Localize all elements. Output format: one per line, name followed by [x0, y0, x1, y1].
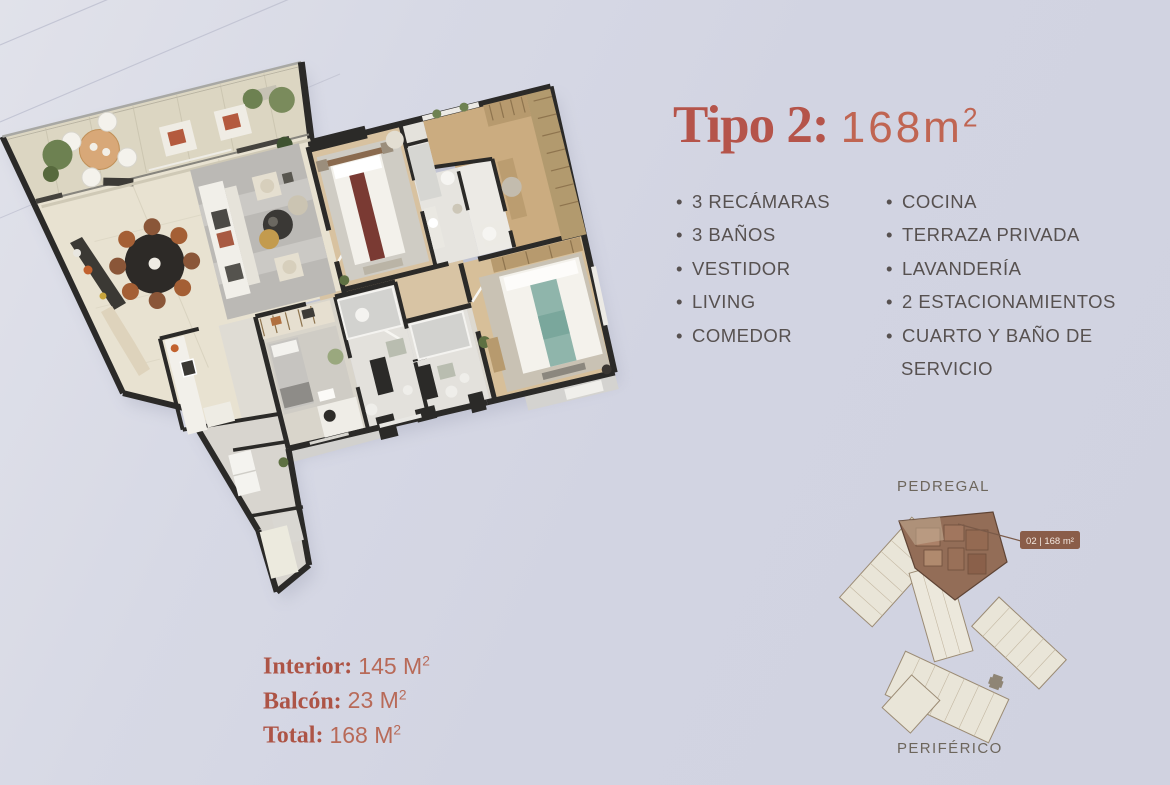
svg-text:02 | 168 m²: 02 | 168 m²	[1026, 536, 1074, 547]
